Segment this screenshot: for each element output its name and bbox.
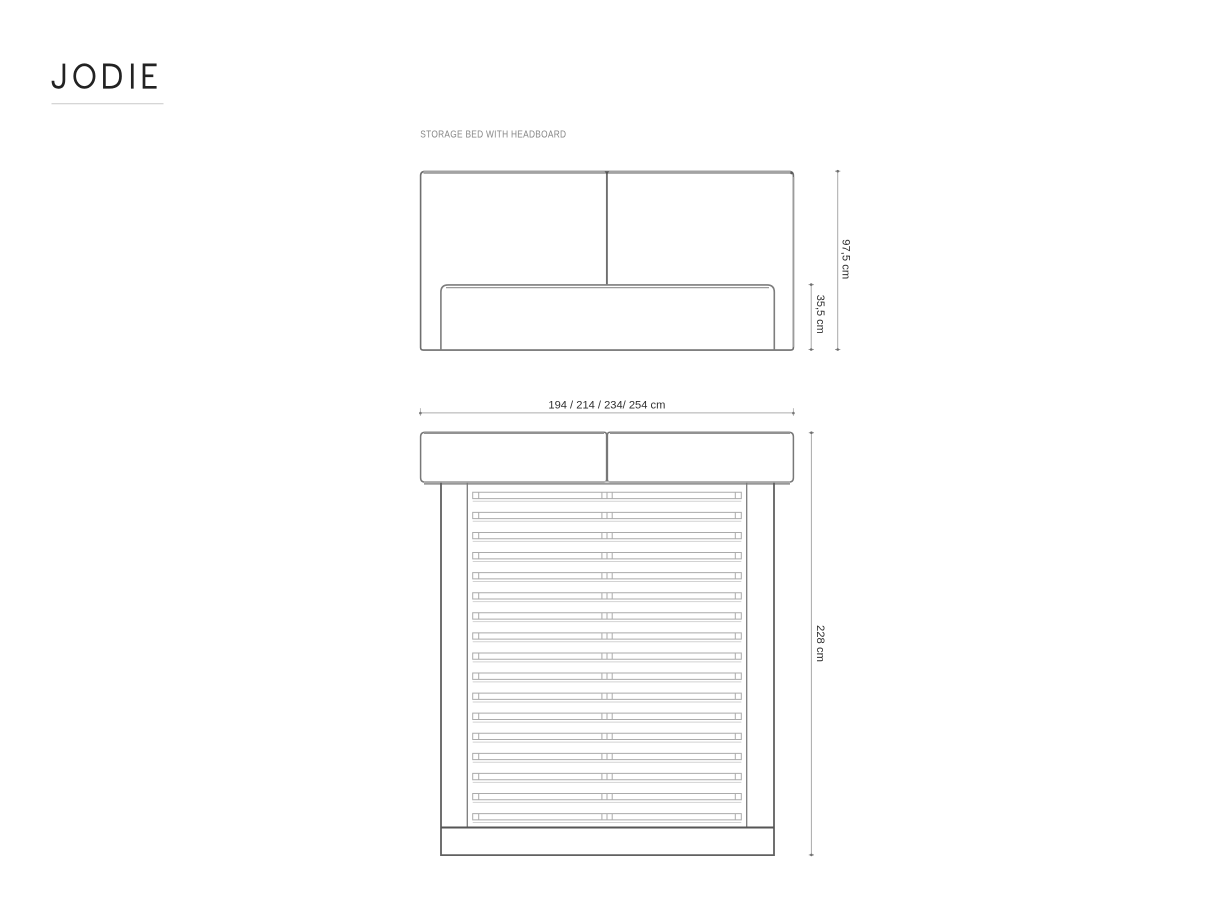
svg-text:194 / 214 / 234/ 254 cm: 194 / 214 / 234/ 254 cm	[548, 399, 665, 411]
svg-text:228 cm: 228 cm	[814, 625, 826, 662]
svg-text:35,5 cm: 35,5 cm	[814, 295, 826, 334]
svg-text:97,5 cm: 97,5 cm	[840, 239, 852, 279]
svg-text:STORAGE BED WITH HEADBOARD: STORAGE BED WITH HEADBOARD	[420, 130, 566, 141]
